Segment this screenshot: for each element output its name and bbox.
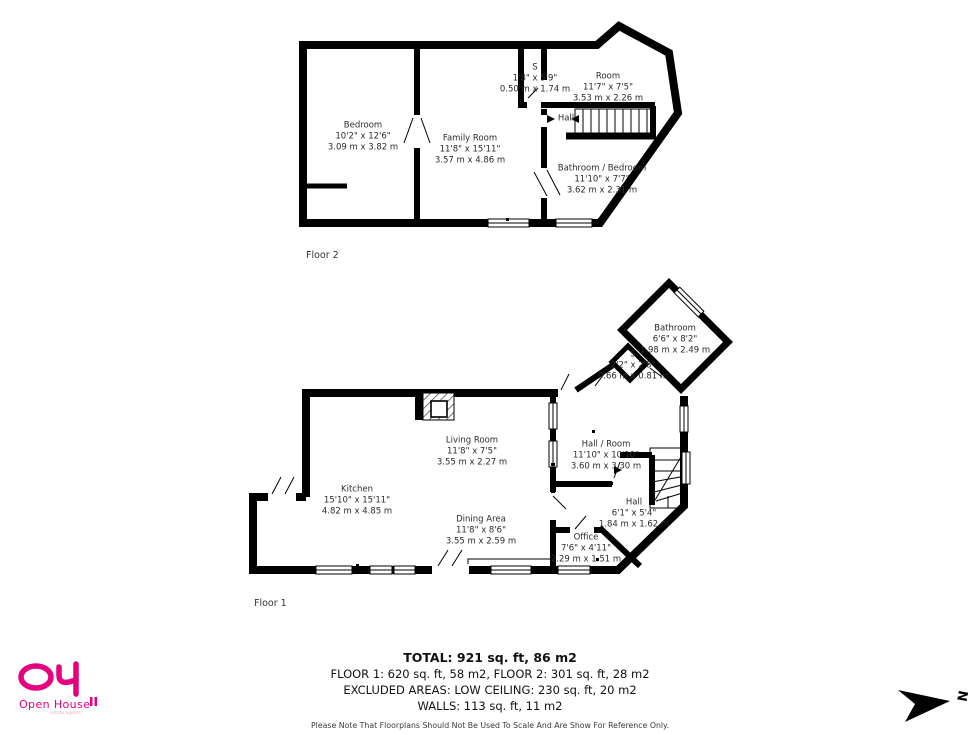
room-name: Bedroom (328, 121, 398, 132)
room-dims-ft: 1'8" x 5'9" (500, 74, 570, 85)
open-house-logo-tagline: estate agents (50, 711, 81, 716)
excluded-areas-text: EXCLUDED AREAS: LOW CEILING: 230 sq. ft,… (0, 683, 980, 697)
room-label-kitchen: Kitchen 15'10" x 15'11" 4.82 m x 4.85 m (322, 485, 392, 518)
room-dims-m: 3.55 m x 2.27 m (437, 458, 507, 469)
room-label-family-room: Family Room 11'8" x 15'11" 3.57 m x 4.86… (435, 134, 505, 167)
room-label-storage-f1: S 2'2" x 2'8" 0.66 m x 0.81 m (598, 350, 668, 383)
room-name: Kitchen (322, 485, 392, 496)
room-name: Bathroom / Bedroom (558, 164, 646, 175)
floor1-chimney (415, 393, 454, 420)
room-dims-m: 0.50 m x 1.74 m (500, 85, 570, 96)
floor1-label: Floor 1 (254, 598, 287, 609)
room-dims-ft: 11'10" x 10'10" (571, 451, 641, 462)
room-dims-ft: 6'6" x 8'2" (640, 335, 710, 346)
floor2-label: Floor 2 (306, 250, 339, 261)
floor2-hall-arrow-left (547, 115, 555, 123)
room-dims-m: 3.53 m x 2.26 m (573, 94, 643, 105)
room-name: Room (573, 72, 643, 83)
room-label-bedroom-f2: Bedroom 10'2" x 12'6" 3.09 m x 3.82 m (328, 121, 398, 154)
room-name: Dining Area (446, 515, 516, 526)
floor2-stairs (575, 109, 653, 133)
walls-area-text: WALLS: 113 sq. ft, 11 m2 (0, 699, 980, 713)
room-dims-ft: 11'8" x 15'11" (435, 145, 505, 156)
room-name: Hall (599, 498, 669, 509)
room-label-storage-f2: S 1'8" x 5'9" 0.50 m x 1.74 m (500, 63, 570, 96)
room-dims-m: 3.60 m x 3.30 m (571, 462, 641, 473)
room-dims-ft: 2'2" x 2'8" (598, 361, 668, 372)
open-house-logo-text: Open House (19, 698, 90, 711)
room-name: Bathroom (640, 324, 710, 335)
room-name: Family Room (435, 134, 505, 145)
room-dims-m: 3.57 m x 4.86 m (435, 156, 505, 167)
room-name: Living Room (437, 436, 507, 447)
room-label-hall-room: Hall / Room 11'10" x 10'10" 3.60 m x 3.3… (571, 440, 641, 473)
floorplan-page: N Bedroom 10'2" x 12'6" 3.09 m x 3.82 m … (0, 0, 980, 735)
room-label-hall-f2: Hall (558, 114, 574, 125)
room-dims-m: 3.62 m x 2.31 m (558, 186, 646, 197)
total-area-text: TOTAL: 921 sq. ft, 86 m2 (0, 650, 980, 665)
room-dims-m: 4.82 m x 4.85 m (322, 507, 392, 518)
room-label-office: Office 7'6" x 4'11" 2.29 m x 1.51 m (551, 533, 621, 566)
room-dims-ft: 11'10" x 7'7" (558, 175, 646, 186)
room-label-bathroom-bedroom-f2: Bathroom / Bedroom 11'10" x 7'7" 3.62 m … (558, 164, 646, 197)
room-dims-m: 3.55 m x 2.59 m (446, 537, 516, 548)
room-name: Hall (558, 114, 574, 125)
room-name: Office (551, 533, 621, 544)
room-dims-ft: 10'2" x 12'6" (328, 132, 398, 143)
room-dims-m: 2.29 m x 1.51 m (551, 555, 621, 566)
floor-areas-text: FLOOR 1: 620 sq. ft, 58 m2, FLOOR 2: 301… (0, 667, 980, 681)
floorplan-drawing: N (0, 0, 980, 735)
room-label-living-room: Living Room 11'8" x 7'5" 3.55 m x 2.27 m (437, 436, 507, 469)
room-dims-ft: 6'1" x 5'4" (599, 509, 669, 520)
room-dims-m: 0.66 m x 0.81 m (598, 372, 668, 383)
room-dims-ft: 11'8" x 7'5" (437, 447, 507, 458)
room-name: S (598, 350, 668, 361)
room-label-room-f2: Room 11'7" x 7'5" 3.53 m x 2.26 m (573, 72, 643, 105)
room-name: Hall / Room (571, 440, 641, 451)
room-dims-m: 3.09 m x 3.82 m (328, 143, 398, 154)
room-dims-ft: 15'10" x 15'11" (322, 496, 392, 507)
room-dims-ft: 7'6" x 4'11" (551, 544, 621, 555)
room-name: S (500, 63, 570, 74)
disclaimer-text: Please Note That Floorplans Should Not B… (0, 721, 980, 730)
room-label-hall-f1: Hall 6'1" x 5'4" 1.84 m x 1.62 m (599, 498, 669, 531)
room-dims-ft: 11'8" x 8'6" (446, 526, 516, 537)
area-summary: TOTAL: 921 sq. ft, 86 m2 FLOOR 1: 620 sq… (0, 650, 980, 730)
room-dims-ft: 11'7" x 7'5" (573, 83, 643, 94)
room-label-dining-area: Dining Area 11'8" x 8'6" 3.55 m x 2.59 m (446, 515, 516, 548)
room-dims-m: 1.84 m x 1.62 m (599, 520, 669, 531)
